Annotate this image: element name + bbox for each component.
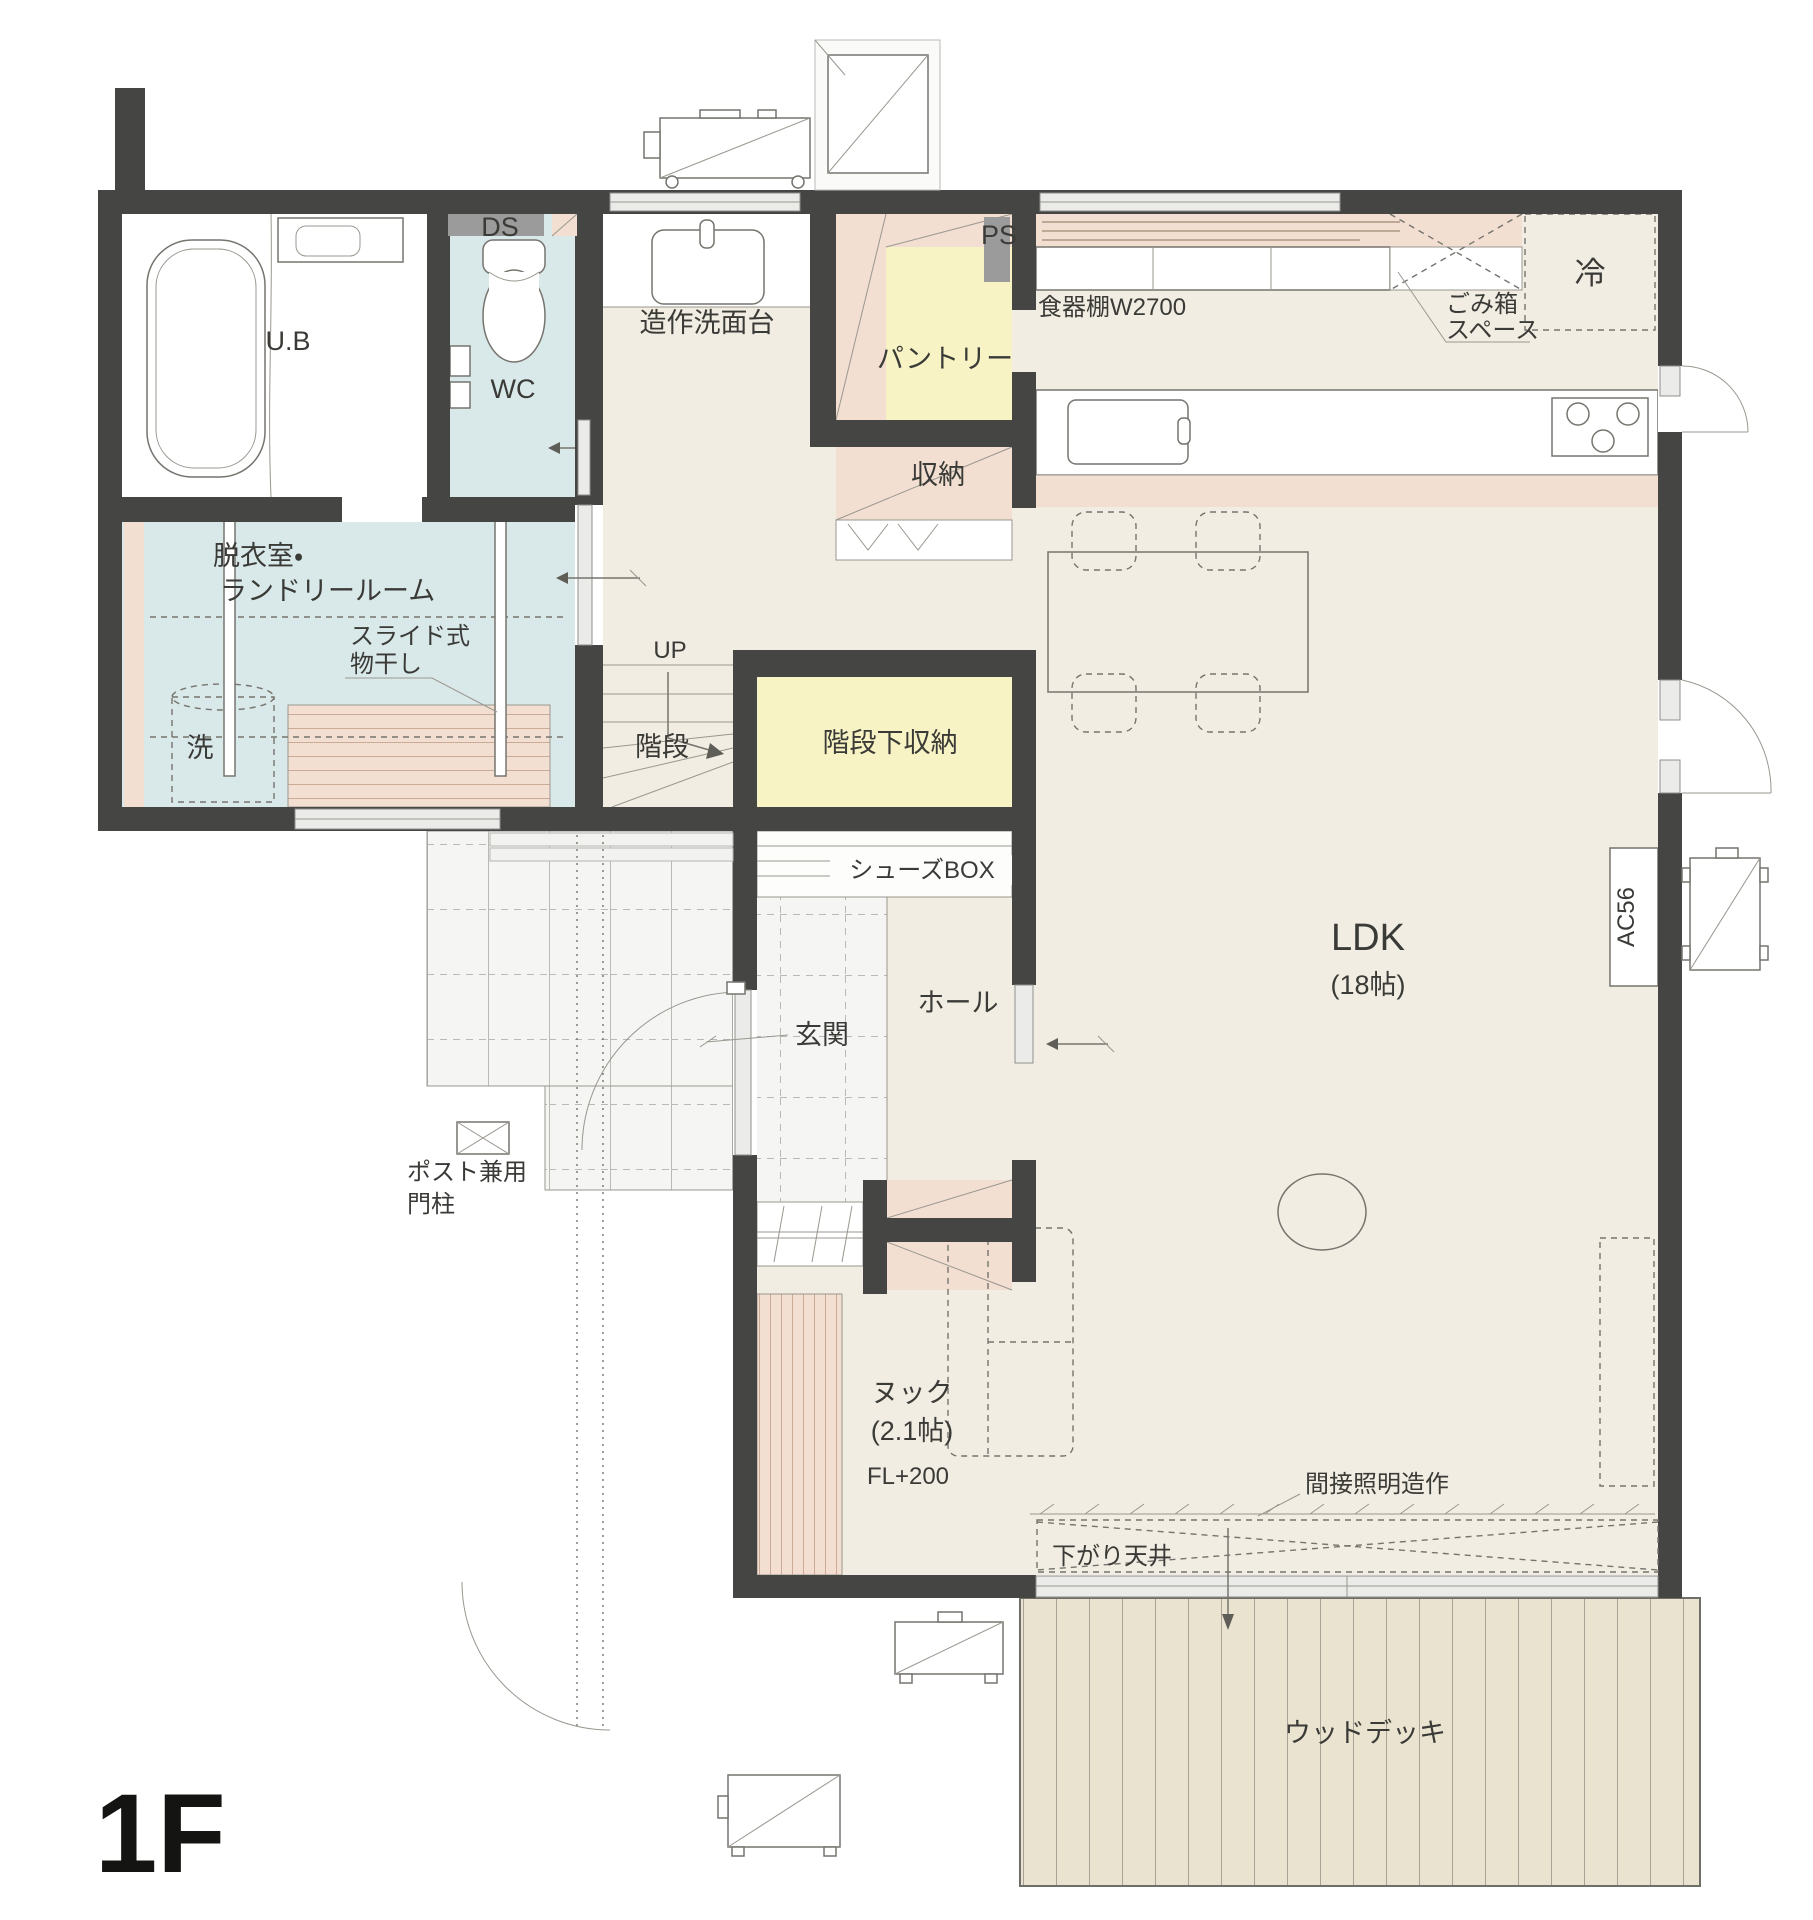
ds-corner xyxy=(552,214,577,236)
entrance-closet xyxy=(757,1202,863,1266)
label-lowered-ceiling: 下がり天井 xyxy=(1052,1543,1172,1570)
window-kitchen xyxy=(1040,193,1340,211)
label-slide-1: スライド式 xyxy=(350,623,470,650)
label-washer: 洗 xyxy=(187,733,214,763)
label-trash-1: ごみ箱 xyxy=(1446,291,1518,318)
window-laundry xyxy=(295,809,500,829)
label-cupboard: 食器棚W2700 xyxy=(1038,294,1186,321)
post-pillar xyxy=(457,1122,509,1154)
label-ps: PS xyxy=(981,220,1017,250)
label-up: UP xyxy=(653,637,686,664)
label-wood-deck: ウッドデッキ xyxy=(1284,1718,1446,1748)
toilet xyxy=(483,240,545,362)
label-hall: ホール xyxy=(918,988,999,1018)
label-post-2: 門柱 xyxy=(407,1191,455,1218)
label-entrance: 玄関 xyxy=(795,1020,849,1050)
ub-door-gap xyxy=(342,497,422,522)
label-ldk-size: (18帖) xyxy=(1330,970,1405,1000)
wc-sliding-door xyxy=(578,420,590,495)
trash-space xyxy=(1390,247,1522,290)
label-ac: AC56 xyxy=(1613,887,1640,947)
label-shoes-box: シューズBOX xyxy=(849,857,994,884)
window-deck-sliding xyxy=(1036,1576,1658,1597)
outdoor-unit-top xyxy=(644,110,810,188)
window-washbasin xyxy=(610,193,800,211)
label-under-stair: 階段下収納 xyxy=(823,728,958,758)
floor-plan-page: U.B WC DS PS 造作洗面台 パントリー 食器棚W2700 ごみ箱 スペ… xyxy=(0,0,1813,1920)
nook-bench xyxy=(757,1294,842,1575)
label-trash-2: スペース xyxy=(1446,317,1539,344)
bathtub xyxy=(147,240,265,477)
label-ub: U.B xyxy=(265,326,310,356)
label-floor: 1F xyxy=(95,1771,226,1896)
label-nook: ヌック xyxy=(872,1378,953,1408)
label-storage: 収納 xyxy=(911,460,965,490)
label-wc: WC xyxy=(491,374,536,404)
label-laundry-1: 脱衣室・ xyxy=(213,541,303,571)
kitchen-island xyxy=(1036,390,1658,507)
outdoor-unit-deck xyxy=(895,1612,1003,1683)
water-heater-tank xyxy=(815,40,940,190)
label-nook-fl: FL+200 xyxy=(867,1463,949,1490)
label-laundry-2: ランドリールーム xyxy=(220,576,435,606)
drying-pole-right xyxy=(495,518,506,776)
label-slide-2: 物干し xyxy=(350,651,422,678)
outdoor-unit-right xyxy=(1682,848,1768,970)
kitchen-cupboard xyxy=(1036,214,1522,290)
label-nook-size: (2.1帖) xyxy=(871,1416,954,1446)
label-pantry: パントリー xyxy=(877,344,1013,374)
outdoor-unit-bottom xyxy=(718,1775,840,1856)
label-post-1: ポスト兼用 xyxy=(407,1159,527,1186)
label-stairs: 階段 xyxy=(635,732,689,762)
label-fridge: 冷 xyxy=(1575,256,1606,291)
label-ldk: LDK xyxy=(1331,917,1405,959)
label-washbasin: 造作洗面台 xyxy=(640,308,775,338)
label-ds: DS xyxy=(481,212,519,242)
washbasin-counter xyxy=(603,214,810,307)
label-indirect-light: 間接照明造作 xyxy=(1305,1471,1449,1498)
floor-plan: U.B WC DS PS 造作洗面台 パントリー 食器棚W2700 ごみ箱 スペ… xyxy=(0,0,1813,1920)
